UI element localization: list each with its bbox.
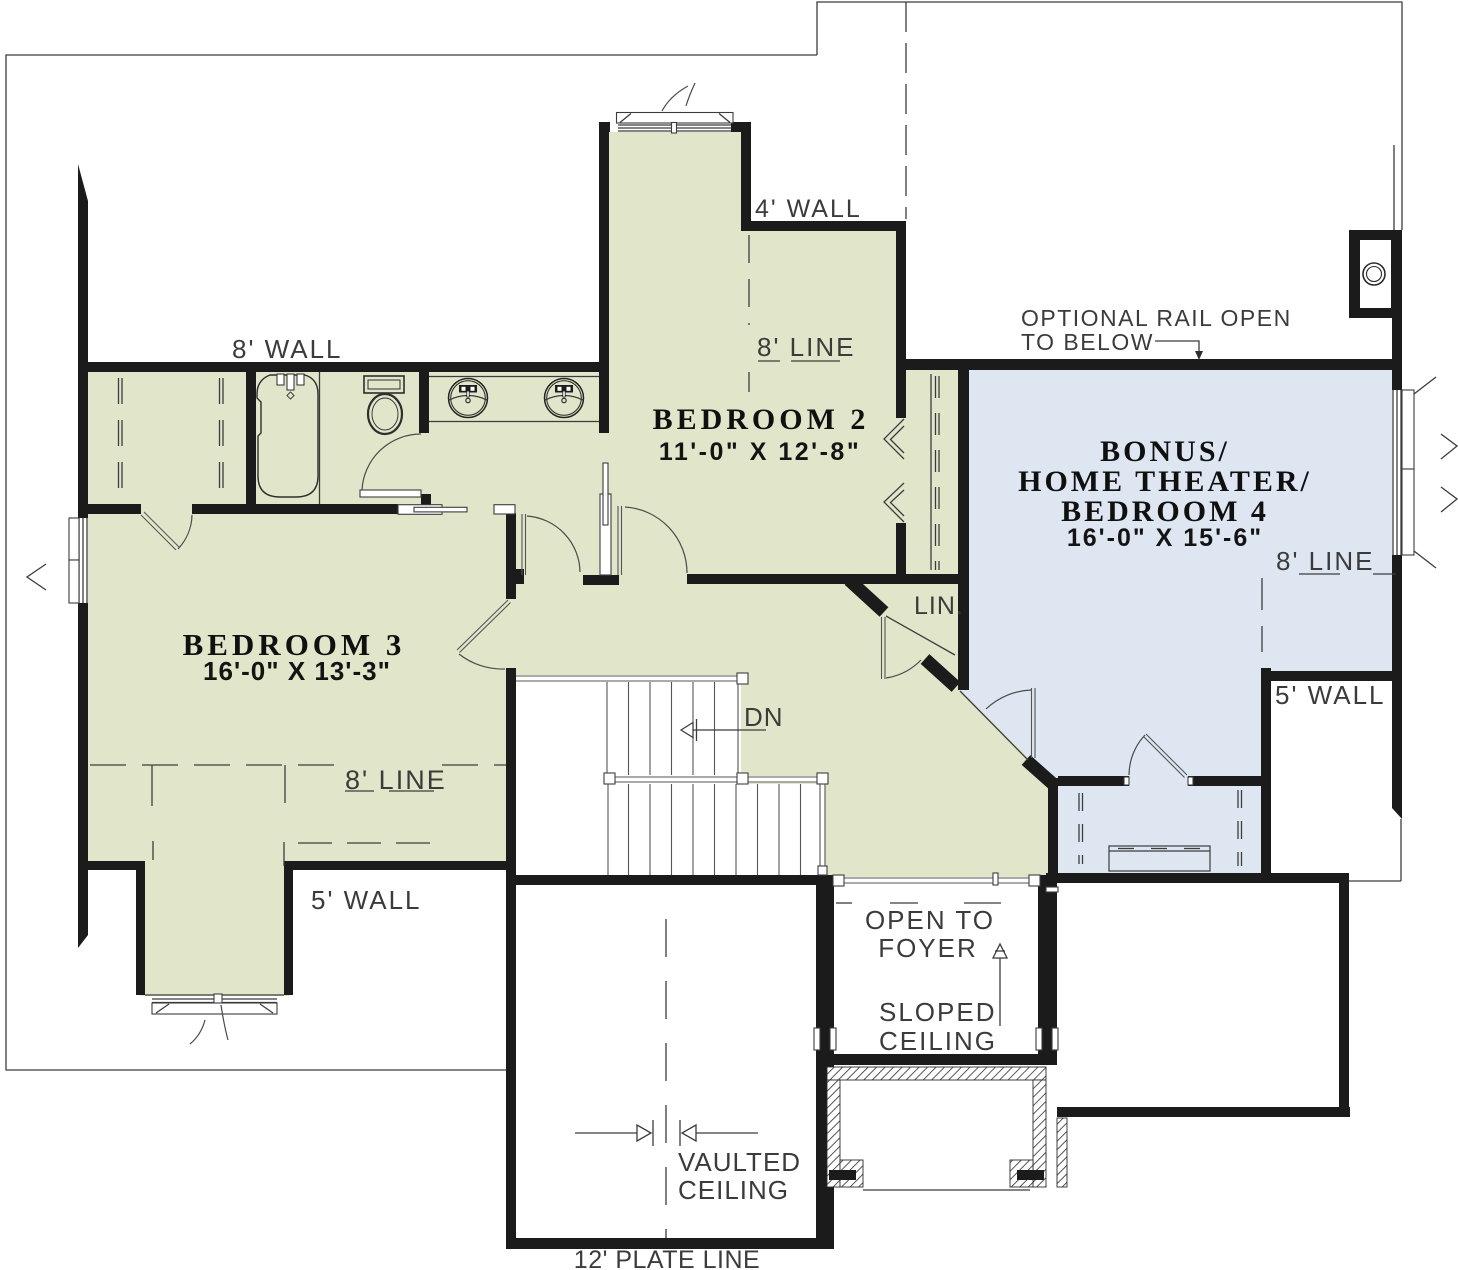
svg-text:LIN.: LIN. [914,592,964,620]
svg-text:DN: DN [744,702,784,732]
svg-text:CEILING: CEILING [879,1026,997,1056]
svg-text:BONUS/: BONUS/ [1100,435,1230,468]
svg-text:8' LINE: 8' LINE [757,332,855,362]
svg-text:TO BELOW: TO BELOW [1021,329,1154,355]
svg-text:5' WALL: 5' WALL [311,885,421,915]
svg-text:5' WALL: 5' WALL [1275,680,1385,710]
svg-text:FOYER: FOYER [878,933,978,963]
svg-text:8' WALL: 8' WALL [232,334,342,364]
svg-text:16'-0" X 13'-3": 16'-0" X 13'-3" [203,656,391,686]
svg-text:OPTIONAL RAIL OPEN: OPTIONAL RAIL OPEN [1021,305,1292,331]
svg-text:HOME THEATER/: HOME THEATER/ [1018,465,1312,498]
svg-text:11'-0" X 12'-8": 11'-0" X 12'-8" [659,438,861,466]
svg-text:12' PLATE LINE: 12' PLATE LINE [574,1246,760,1270]
svg-text:8' LINE: 8' LINE [345,765,447,795]
svg-text:OPEN TO: OPEN TO [865,905,995,935]
svg-text:16'-0" X 15'-6": 16'-0" X 15'-6" [1067,524,1263,552]
svg-text:CEILING: CEILING [678,1175,789,1205]
svg-text:8' LINE: 8' LINE [1276,546,1374,576]
svg-text:BEDROOM 2: BEDROOM 2 [653,403,870,436]
svg-text:4' WALL: 4' WALL [755,195,862,223]
svg-text:VAULTED: VAULTED [678,1147,801,1177]
svg-text:SLOPED: SLOPED [879,997,997,1027]
